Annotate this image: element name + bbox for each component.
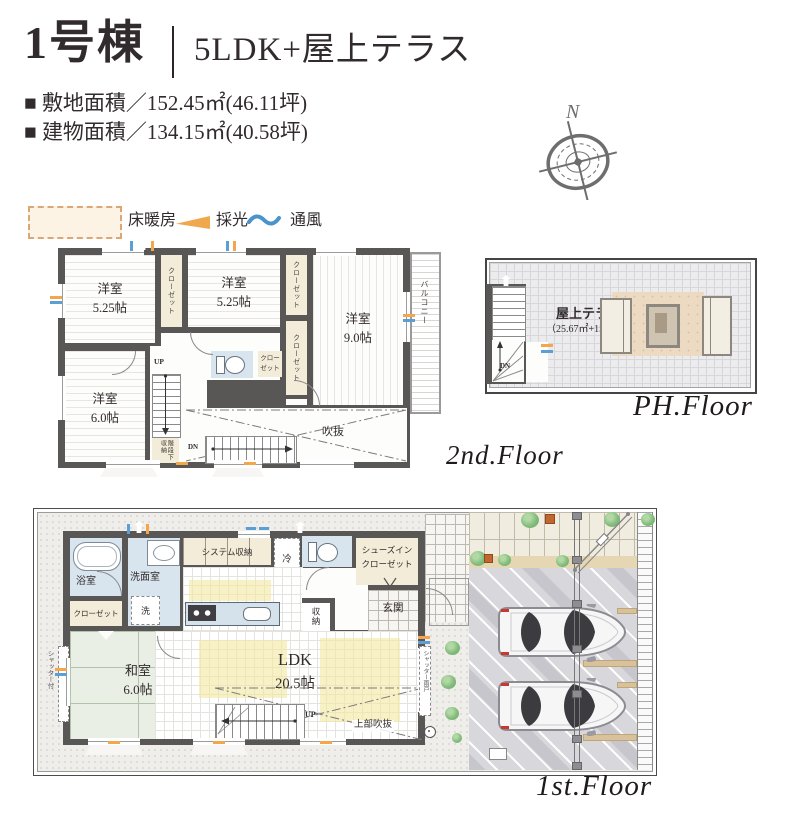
ph-stairs [492,286,526,342]
compass-north-label: N [565,101,581,123]
fence-post [572,762,582,770]
up-stairs-arrow [152,368,179,440]
bush [445,641,460,655]
void-label: 吹抜 [322,426,344,440]
window [102,248,144,256]
building-title: 1号棟 [24,14,145,72]
closet-1-label: クローゼット [167,259,177,323]
storage-room: 収納 [302,598,335,635]
dn-label: DN [188,443,198,452]
fence-post [572,645,582,653]
site-area-bullet: ■ [24,91,37,115]
daylight-icon [176,216,210,229]
site-area-line: ■ 敷地面積／152.45㎡(46.11坪) [24,90,307,116]
window [58,376,66,420]
window [63,658,70,706]
window [238,531,270,538]
system-storage-label: システム収納 [183,546,271,558]
floor-heating-area [189,580,271,601]
legend-daylight-label: 採光 [216,211,248,231]
bush [641,513,655,526]
building-area-line: ■ 建物面積／134.15㎡(40.58坪) [24,119,308,145]
compass-icon: N [534,100,622,200]
ventilation-tick [50,301,62,304]
bedroom1-label: 洋室5.25帖 [65,278,155,316]
bush [445,707,459,720]
daylight-tick [233,241,236,251]
side-fence [637,512,653,770]
ventilation-icon [246,210,282,230]
ventilation-tick [246,527,256,530]
toilet2-tank-icon [216,356,225,374]
daylight-tick [320,741,332,744]
ventilation-tick [418,641,430,644]
outdoor-faucet-icon [424,726,436,738]
plan-type-title: 5LDK+屋上テラス [194,30,471,71]
washroom-label: 洗面室 [130,572,160,585]
storage-label: 収納 [310,607,322,626]
legend-floor-heating-label: 床暖房 [128,211,176,231]
bedroom4-label: 洋室6.0帖 [65,388,145,426]
shoe-closet-label: シューズインクローゼット [356,538,418,571]
bush [441,675,456,689]
terrace-table [646,304,680,348]
flower-pot [484,554,493,563]
bathtub-icon [73,542,121,571]
stove-icon [188,605,216,621]
ventilation-tick [226,241,229,251]
ventilation-tick [127,524,130,534]
washer-space: 洗 [131,596,160,625]
bush [498,554,511,566]
bedroom2-label: 洋室5.25帖 [188,272,280,310]
ventilation-tick [130,241,133,251]
upper-void-label: 上部吹抜 [352,720,394,732]
ventilation-tick [541,350,553,353]
balcony [410,252,441,414]
hall-strip [161,333,280,346]
closet-2: クローゼット [286,255,307,315]
up-label-2f: UP [154,357,164,366]
building-area-bullet: ■ [24,120,37,144]
daylight-tick [50,296,62,299]
daylight-tick [151,241,154,251]
toilet1-tank-icon [308,542,317,562]
closet-4-label: クローゼット [258,351,282,374]
window [196,248,246,256]
bush [556,555,569,567]
fridge-label: 冷 [275,539,299,565]
kitchen-sink-icon [243,607,271,621]
shutter-right-label: シャッター雨戸 [421,650,430,692]
flower-pot [545,514,555,524]
ph-floor-caption: PH.Floor [633,390,753,423]
first-floor-caption: 1st.Floor [536,770,652,803]
up-label-1f: UP [305,710,316,720]
understairs-storage-label: 階段下収納 [159,440,173,462]
ph-stair-fan [492,340,524,382]
bay-window [190,745,248,755]
entrance-arrow [382,576,398,589]
floor-heating-swatch [28,206,122,239]
shutter-left-label: シャッター付 [44,650,54,689]
washbasin-icon [147,540,180,566]
closet-4: クローゼット [258,351,282,377]
ph-dn-label: DN [500,362,510,371]
closet-1: クローゼット [161,255,182,327]
first-closet: クローゼット [70,601,122,626]
building-area-text: 建物面積／134.15㎡(40.58坪) [42,120,308,144]
ph-landing2 [526,342,548,382]
car-top-view [497,678,629,736]
entrance-label: 玄関 [368,600,418,615]
bush [521,512,539,528]
toilet1-bowl-icon [317,543,338,562]
bay-window [85,745,143,755]
bay-window [100,468,158,477]
fence-post [572,600,582,608]
washer-label: 洗 [132,597,159,617]
toilet2-bowl-icon [225,356,245,374]
car-top-view [497,604,629,662]
bathroom-label: 浴室 [76,576,96,589]
window [106,460,160,468]
terrace-sofa-left [600,298,632,354]
daylight-tick [55,668,67,671]
ventilation-tick [55,673,67,676]
site-area-text: 敷地面積／152.45㎡(46.11坪) [42,91,307,115]
daylight-tick [403,314,415,317]
bush [452,733,462,743]
balcony-label: バルコニー [419,280,430,325]
ventilation-tick [403,319,415,322]
window [300,460,354,468]
bedroom3-label: 洋室9.0帖 [313,308,403,346]
daylight-tick [541,344,553,347]
closet-2-label: クローゼット [292,258,302,312]
daylight-tick [213,741,225,744]
terrace-sofa-right [702,296,732,356]
daylight-tick [146,524,149,534]
daylight-tick [244,462,256,465]
dn-stairs-arrow [205,436,301,462]
daylight-tick [108,741,120,744]
meter-box [489,748,507,760]
fence-post [572,690,582,698]
bay-window [212,468,264,477]
daylight-tick [418,636,430,639]
daylight-tick [176,462,188,465]
title-divider [172,26,174,78]
window [402,292,410,342]
fence-post [572,735,582,743]
ventilation-tick [259,527,269,530]
ldk-label: LDK [240,650,350,670]
gate-line [572,508,636,574]
legend-ventilation-label: 通風 [290,211,322,231]
up-stairs-1f-arrow [215,704,307,738]
second-floor-caption: 2nd.Floor [446,440,564,471]
first-closet-label: クローゼット [70,601,122,619]
floorplan-sheet: 1号棟 5LDK+屋上テラス ■ 敷地面積／152.45㎡(46.11坪) ■ … [0,0,790,820]
